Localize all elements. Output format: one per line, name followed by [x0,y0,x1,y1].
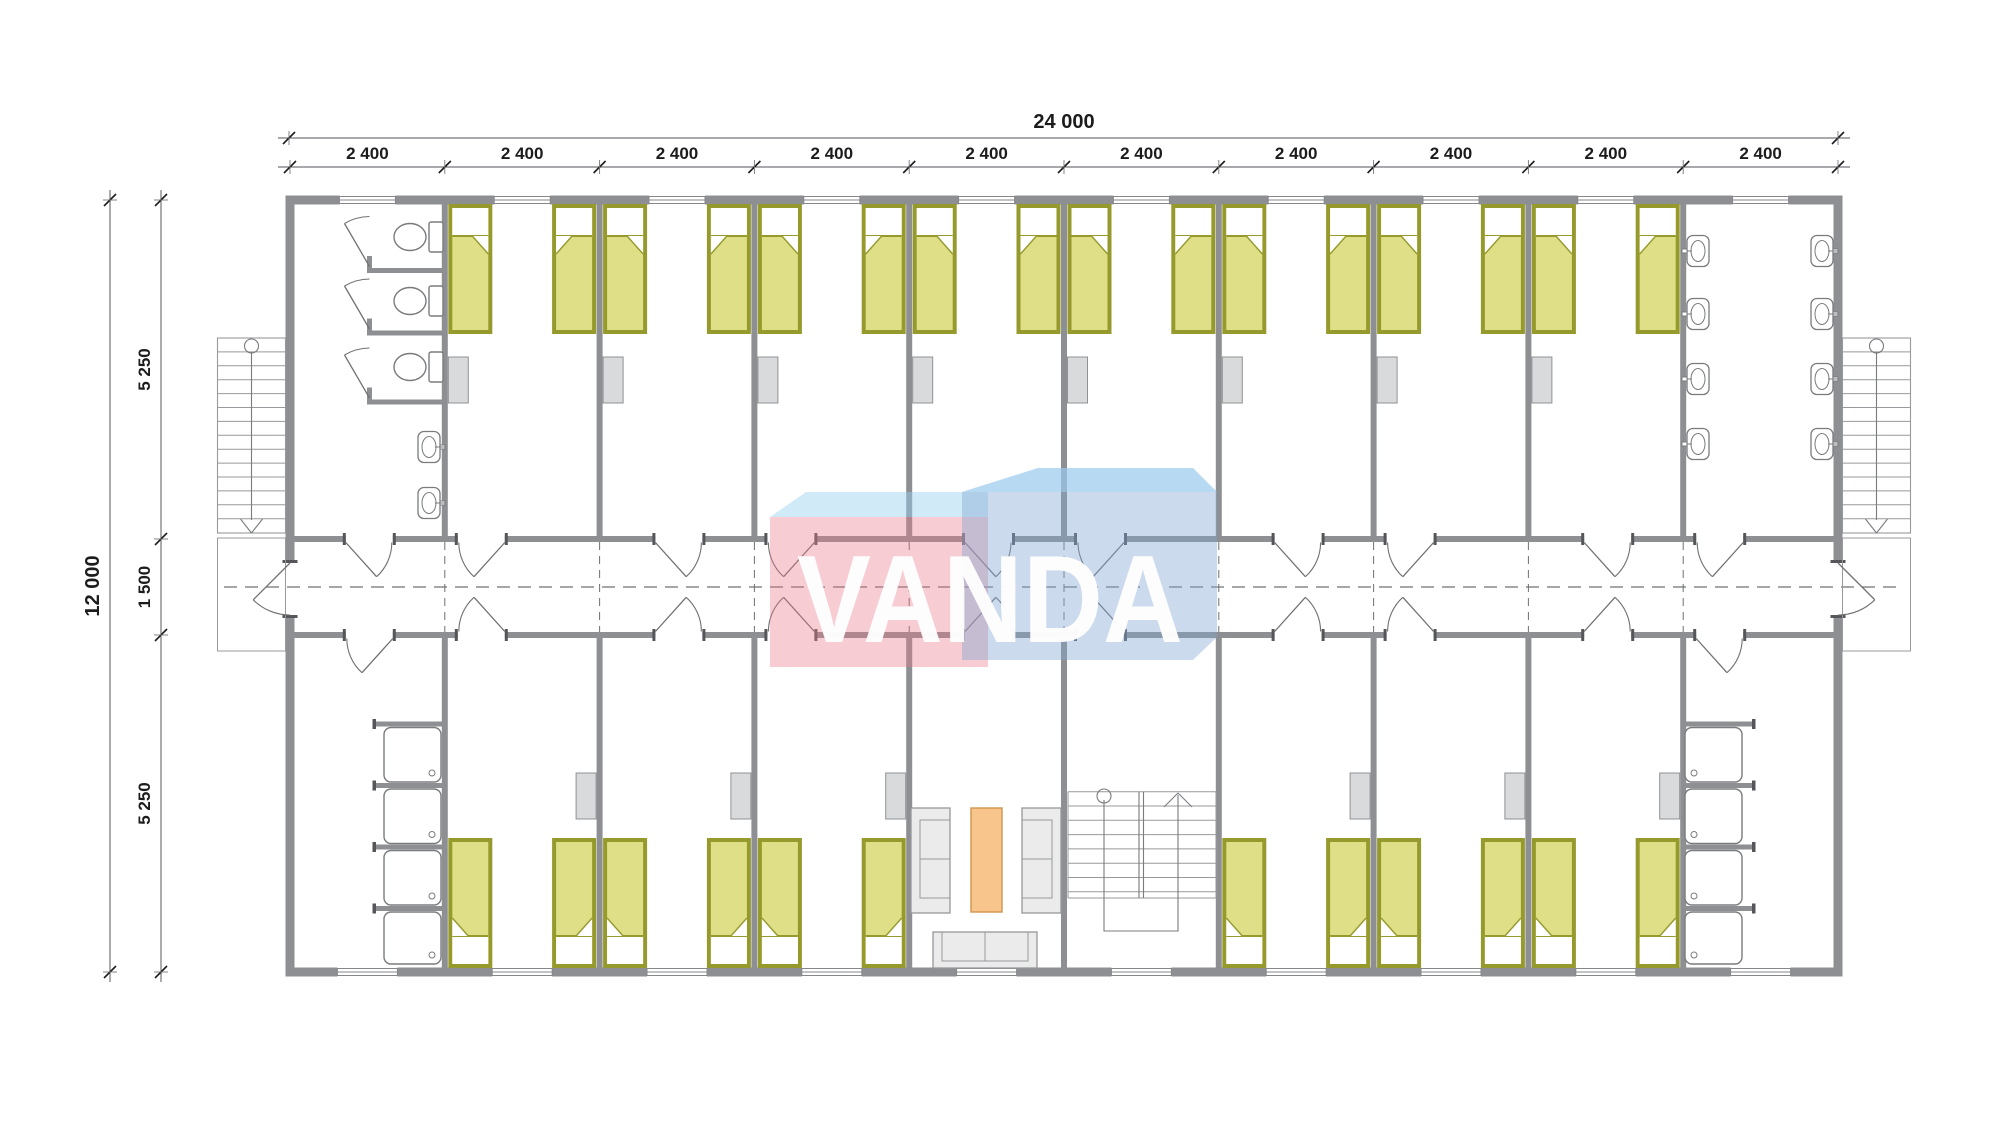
bed [448,204,492,334]
bed-pillow [866,208,902,236]
partition-wall-bottom-row [1061,635,1067,972]
bed-pillow [1330,208,1366,236]
door-jamb [1322,629,1325,641]
bed-pillow [1381,208,1417,236]
bed-pillow [1226,208,1262,236]
bed-pillow [917,208,953,236]
partition-wall-top-row [1371,200,1377,539]
partition-wall-top-row [751,200,757,539]
bed-pillow [607,936,643,964]
bed [1171,204,1215,334]
door-jamb [1434,533,1437,545]
bed-pillow [1330,936,1366,964]
door-jamb [764,533,767,545]
door-jamb [343,533,346,545]
bed [552,838,596,968]
partition-wall-top-row [906,200,912,539]
door-jamb [1272,629,1275,641]
dim-top-segment-label: 2 400 [1120,144,1163,163]
shower-partition-cap [1752,719,1756,729]
door-jamb [1631,629,1634,641]
bed [1532,838,1576,968]
bed [758,204,802,334]
wardrobe [448,357,468,403]
bed-pillow [762,208,798,236]
bed [758,838,802,968]
dim-left-segment-label: 5 250 [135,782,154,825]
basin-tap [1682,442,1687,446]
room-door-opening [1275,631,1322,640]
door-jamb [1743,533,1746,545]
wardrobe [1377,357,1397,403]
wardrobe [1068,357,1088,403]
door-jamb [1322,533,1325,545]
dim-top-segment-label: 2 400 [811,144,854,163]
shower-tray [384,851,441,906]
partition-wall-top-row [1525,200,1531,539]
toilet [394,222,443,252]
shower-partition-cap [1752,904,1756,914]
door-jamb [505,629,508,641]
dim-left-total-label: 12 000 [82,555,104,616]
shower-partition-cap [373,842,377,852]
floor-plan-page: VANDA24 0002 4002 4002 4002 4002 4002 40… [0,0,2000,1131]
wardrobe [576,773,596,819]
door-jamb [1384,629,1387,641]
bed [1377,838,1421,968]
toilet [394,352,443,382]
door-jamb [1693,533,1696,545]
bed [1636,204,1680,334]
shower-tray [1685,728,1742,783]
bed-pillow [1381,936,1417,964]
basin-tap [1682,249,1687,253]
shower-partition-cap [1752,842,1756,852]
dim-top-segment-label: 2 400 [1739,144,1782,163]
bed [552,204,596,334]
room-door-opening [655,631,702,640]
wardrobe [731,773,751,819]
bed [1481,838,1525,968]
bed [603,838,647,968]
partition-wall-bottom-row [597,635,603,972]
wardrobe [1350,773,1370,819]
bed [1326,838,1370,968]
door-jamb [1831,560,1846,563]
partition-wall-bottom-row [751,635,757,972]
room-door-opening [1387,631,1434,640]
door-jamb [1743,629,1746,641]
floor-plan-drawing: VANDA24 0002 4002 4002 4002 4002 4002 40… [0,0,2000,1131]
bed [448,838,492,968]
partition-wall-top-row [1216,200,1222,539]
door-jamb [455,533,458,545]
shower-partition-cap [1752,781,1756,791]
basin-tap [1682,377,1687,381]
dim-top-segment-label: 2 400 [1430,144,1473,163]
bed-pillow [1175,208,1211,236]
shower-tray [1685,851,1742,906]
toilet-bowl [394,224,426,251]
shower-partition [1683,845,1755,850]
wardrobe [886,773,906,819]
shower-partition [1683,906,1755,911]
bed-pillow [1536,936,1572,964]
wardrobe [913,357,933,403]
bed [862,204,906,334]
bed [913,204,957,334]
shower-partition-cap [373,904,377,914]
toilet-tank [429,352,443,382]
door-jamb [343,629,346,641]
bed [1377,204,1421,334]
door-jamb [393,533,396,545]
room-door-opening [1696,535,1743,544]
bed-pillow [1640,936,1676,964]
dim-top-segment-label: 2 400 [346,144,389,163]
bed [1326,204,1370,334]
bed [1481,204,1525,334]
shower-partition [1683,722,1755,727]
toilet-tank [429,222,443,252]
door-jamb [1631,533,1634,545]
bed [1222,204,1266,334]
bed-pillow [762,936,798,964]
partition-wall-bottom-row [1525,635,1531,972]
dim-top-segment-label: 2 400 [1585,144,1628,163]
bed-pillow [1485,936,1521,964]
partition-wall-bottom-row [1371,635,1377,972]
watermark-text: VANDA [797,531,1183,669]
sofa [1022,808,1061,913]
wardrobe [1660,773,1680,819]
bed-pillow [1536,208,1572,236]
dim-top-total-label: 24 000 [1033,111,1094,133]
partition-wall-bottom-row [1216,635,1222,972]
shower-partition-cap [373,719,377,729]
bed-pillow [452,208,488,236]
bed [862,838,906,968]
bed-pillow [1485,208,1521,236]
exit-door-opening [1833,563,1844,615]
room-door-opening [1696,631,1743,640]
shower-partition [375,722,445,727]
room-door-opening [655,535,702,544]
dim-top-segment-label: 2 400 [1275,144,1318,163]
basin-tap [1682,312,1687,316]
wardrobe [1505,773,1525,819]
shower-partition [375,783,445,788]
bed-pillow [1021,208,1057,236]
watermark-pink-top-face [770,492,988,517]
bed-pillow [711,936,747,964]
wardrobe [603,357,623,403]
room-door-opening [346,535,393,544]
partition-wall-bottom-row [906,635,912,972]
dim-left-segment-label: 5 250 [135,348,154,391]
bed [1636,838,1680,968]
dim-left-segment-label: 1 500 [135,566,154,609]
dim-top-segment-label: 2 400 [501,144,544,163]
bed-pillow [711,208,747,236]
watermark-logo: VANDA [770,468,1217,669]
bed-pillow [556,936,592,964]
door-jamb [393,629,396,641]
toilet-stall-partition [367,268,444,273]
toilet-stall-partition [367,331,444,336]
bed-pillow [607,208,643,236]
bed [707,838,751,968]
room-door-opening [1584,535,1631,544]
door-jamb [1581,629,1584,641]
bed-pillow [1072,208,1108,236]
room-door-opening [1584,631,1631,640]
door-jamb [505,533,508,545]
door-jamb [652,533,655,545]
shower-partition-cap [373,781,377,791]
room-door-opening [1387,535,1434,544]
room-door-opening [458,631,505,640]
door-jamb [1693,629,1696,641]
toilet-tank [429,286,443,316]
door-jamb [702,629,705,641]
wardrobe [1532,357,1552,403]
exit-door-opening [285,563,296,615]
door-jamb [455,629,458,641]
shower-partition [375,845,445,850]
room-door-opening [346,631,393,640]
bed [603,204,647,334]
coffee-table [971,808,1002,912]
partition-wall-bottom-row [442,635,448,972]
toilet-stall-partition [367,400,444,405]
wardrobe [758,357,778,403]
bed-pillow [866,936,902,964]
dim-top-segment-label: 2 400 [656,144,699,163]
shower-tray [384,789,441,844]
shower-partition [375,906,445,911]
toilet [394,286,443,316]
shower-partition [1683,783,1755,788]
room-door-opening [1275,535,1322,544]
sofa [911,808,950,913]
door-jamb [652,629,655,641]
door-jamb [1434,629,1437,641]
toilet-bowl [394,288,426,315]
shower-tray [1685,789,1742,844]
shower-tray [384,912,441,964]
bed-pillow [1640,208,1676,236]
door-jamb [283,560,298,563]
bed [1068,204,1112,334]
toilet-bowl [394,354,426,381]
bed-pillow [452,936,488,964]
door-jamb [1384,533,1387,545]
bed [707,204,751,334]
door-jamb [764,629,767,641]
bed-pillow [556,208,592,236]
shower-tray [1685,912,1742,964]
bed-pillow [1226,936,1262,964]
room-door-opening [458,535,505,544]
bed [1532,204,1576,334]
wardrobe [1222,357,1242,403]
shower-tray [384,728,441,783]
bed [1222,838,1266,968]
door-jamb [1272,533,1275,545]
partition-wall-top-row [597,200,603,539]
dim-top-segment-label: 2 400 [965,144,1008,163]
door-jamb [702,533,705,545]
bed [1017,204,1061,334]
door-jamb [1581,533,1584,545]
